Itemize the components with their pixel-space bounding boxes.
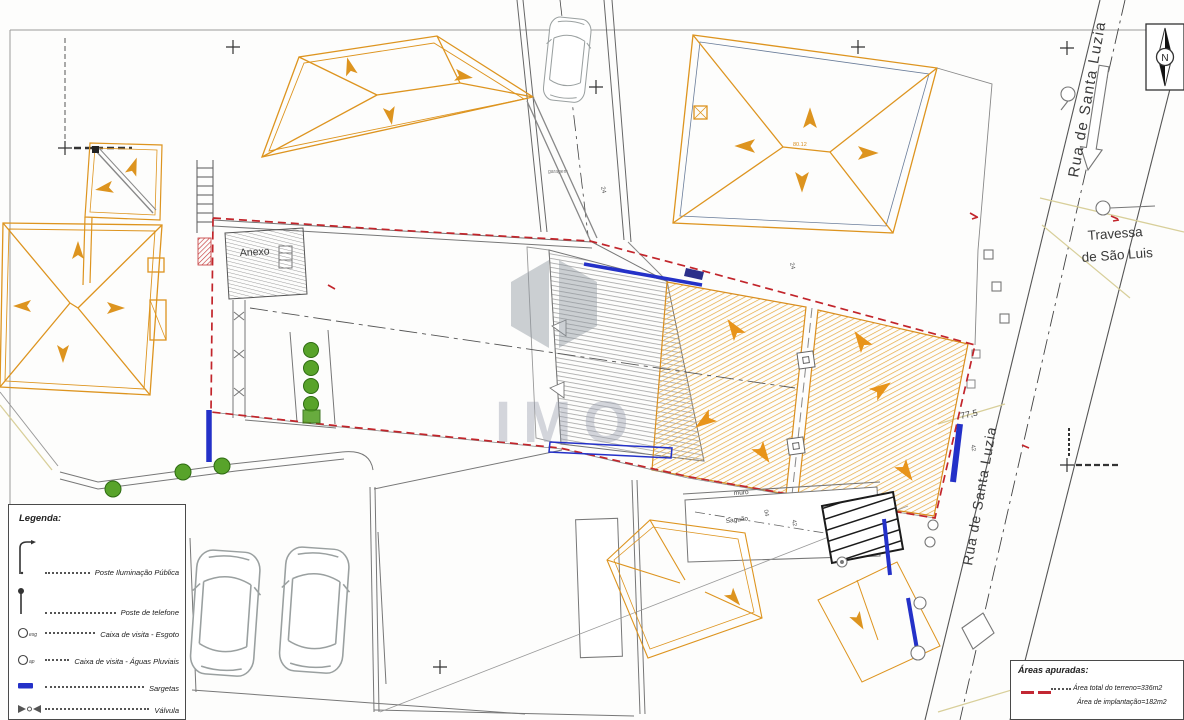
legend-label: Caixa de visita - Esgoto	[100, 630, 179, 639]
dim-77-5-label: 77,5	[959, 408, 978, 421]
stairs-hatched	[822, 492, 903, 563]
car-right	[276, 546, 352, 675]
area-implantacao-line: Área de implantação=182m2	[1077, 699, 1167, 706]
roof-level-label: 80.12	[793, 142, 807, 148]
legend-title: Legenda:	[19, 513, 61, 524]
svg-text:ap: ap	[29, 659, 35, 665]
areas-title: Áreas apuradas:	[1018, 665, 1089, 675]
red-dash-symbol	[1038, 691, 1051, 694]
anexo-label: Anexo	[240, 245, 271, 259]
legend-item-manhole-esgoto: esg Caixa de visita - Esgoto	[17, 627, 179, 641]
legend-box: Legenda: Poste Iluminação Pública Post	[8, 504, 186, 720]
watermark-text: IMO	[495, 390, 641, 455]
red-dash-symbol	[1021, 691, 1034, 694]
street-label-travessa-1: Travessa	[1087, 224, 1143, 243]
legend-item-sargetas: Sargetas	[17, 682, 179, 694]
area-total-line: Área total do terreno=336m2	[1073, 685, 1162, 692]
car-top	[541, 16, 594, 104]
building-roof-southeast	[818, 562, 940, 682]
car-left	[187, 549, 263, 678]
survey-coordinate-marker-right	[1060, 428, 1118, 472]
exterior-stairs-nw	[197, 160, 213, 265]
micro-label: 42	[969, 444, 976, 452]
muro-label: muro	[734, 489, 750, 497]
survey-coordinate-marker-topleft	[58, 38, 132, 155]
north-letter: N	[1161, 53, 1168, 64]
garage-lane	[517, 0, 668, 282]
areas-box: Áreas apuradas: Área total do terreno=33…	[1010, 660, 1184, 720]
building-roof-south	[607, 520, 762, 658]
site-plan-canvas: IMO Rua de Santa Luzia Rua de Santa Luzi…	[0, 0, 1184, 720]
legend-label: Sargetas	[149, 684, 179, 693]
building-roof-west	[0, 223, 166, 395]
street-label-travessa-2: de São Luis	[1081, 245, 1153, 265]
legend-label: Poste Iluminação Pública	[95, 568, 179, 577]
legend-item-streetlight: Poste Iluminação Pública	[17, 539, 179, 577]
orange-roof-hatch	[652, 268, 980, 516]
street-label-rua-bottom: Rua de Santa Luzia	[959, 425, 999, 567]
legend-item-telephone-pole: Poste de telefone	[17, 587, 179, 617]
svg-text:esg: esg	[29, 632, 37, 638]
micro-label: 24	[788, 262, 795, 270]
legend-label: Poste de telefone	[121, 608, 179, 617]
legend-label: Válvula	[154, 706, 179, 715]
legend-label: Caixa de visita - Águas Pluviais	[74, 657, 179, 666]
anexo-block	[225, 228, 307, 299]
garagem-label: garagem	[548, 169, 568, 175]
legend-item-manhole-pluviais: ap Caixa de visita - Águas Pluviais	[17, 654, 179, 668]
north-arrow: N	[1146, 24, 1184, 90]
legend-item-valvula: Válvula	[17, 704, 179, 716]
micro-label: 24	[599, 186, 606, 194]
